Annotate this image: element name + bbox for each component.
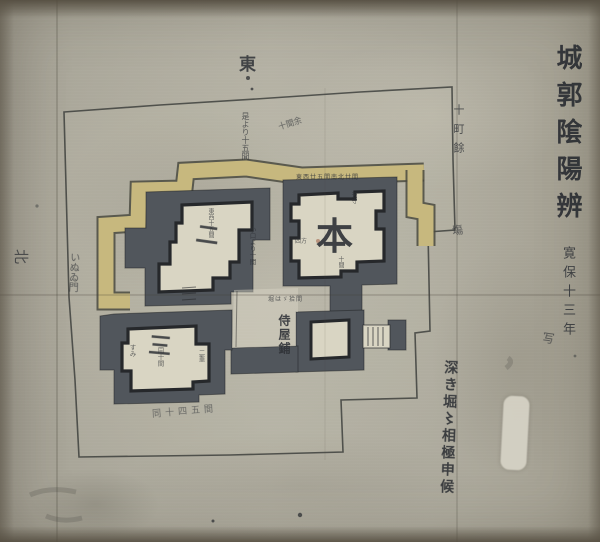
red-mark xyxy=(316,239,320,243)
gate-square xyxy=(311,320,349,359)
compound-sannomaru xyxy=(122,326,209,391)
old-map-paper: 城郭隂陽辨 寛保十三年 写 東 北 本 二 三 侍屋鋪 十町餘 塲 いぬゐ門 是… xyxy=(0,0,600,542)
paper-repair-label xyxy=(500,395,530,470)
bridge-symbol xyxy=(363,325,390,348)
moat-bottom-band xyxy=(231,346,298,374)
samurai-area xyxy=(232,288,298,348)
moat-right-nub xyxy=(388,320,406,350)
